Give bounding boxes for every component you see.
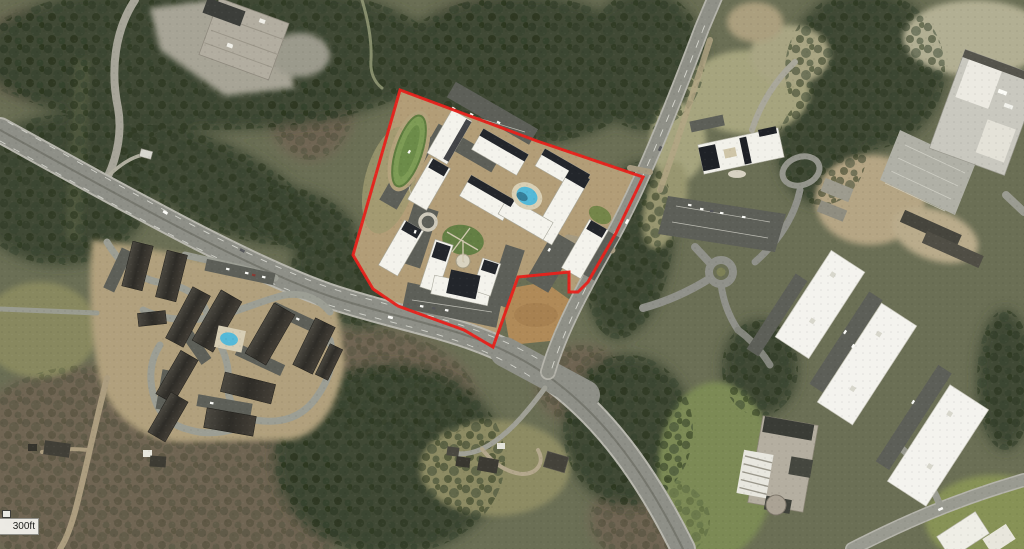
scale-label: 300ft: [13, 522, 35, 532]
aerial-image: [0, 0, 1024, 549]
scale-icon: [2, 510, 11, 518]
map-scale-widget: 300ft: [0, 518, 39, 535]
image-grain-overlay: [0, 0, 1024, 549]
map-canvas[interactable]: 300ft: [0, 0, 1024, 549]
